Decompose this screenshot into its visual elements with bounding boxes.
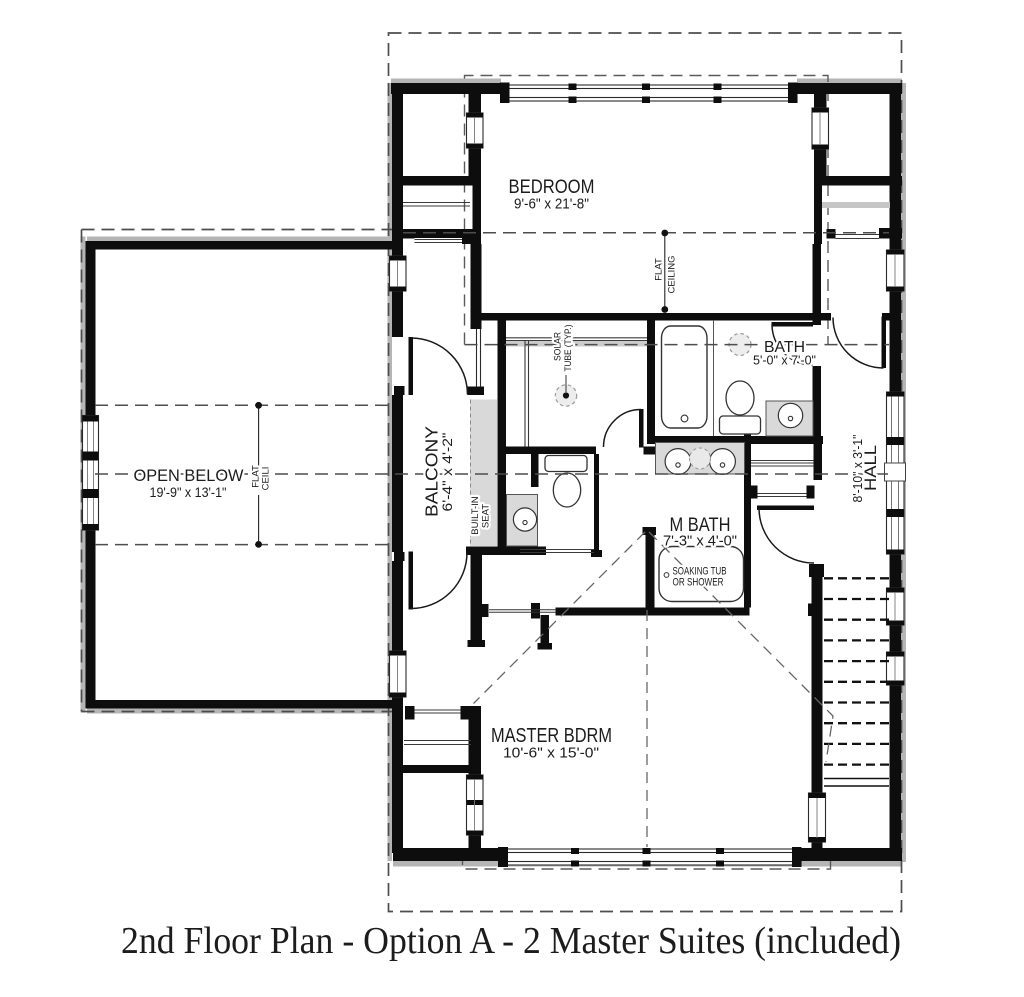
svg-text:CEILING: CEILING bbox=[667, 255, 678, 293]
svg-text:19'-9" x 13'-1": 19'-9" x 13'-1" bbox=[150, 484, 227, 500]
svg-text:2nd Floor Plan - Option A - 2: 2nd Floor Plan - Option A - 2 Master Sui… bbox=[121, 920, 901, 962]
svg-text:CEILI: CEILI bbox=[261, 467, 272, 491]
svg-text:BEDROOM: BEDROOM bbox=[509, 177, 595, 198]
svg-text:SEAT: SEAT bbox=[481, 504, 492, 528]
svg-text:10'-6" x 15'-0": 10'-6" x 15'-0" bbox=[503, 745, 599, 762]
svg-text:OR SHOWER: OR SHOWER bbox=[673, 577, 724, 589]
svg-text:FLAT: FLAT bbox=[654, 258, 665, 281]
svg-text:8'-10" x 3'-1": 8'-10" x 3'-1" bbox=[851, 435, 865, 503]
svg-text:6'-4" x 4'-2": 6'-4" x 4'-2" bbox=[440, 432, 455, 511]
svg-text:BUILT-IN: BUILT-IN bbox=[470, 496, 481, 534]
svg-text:9'-6" x 21'-8": 9'-6" x 21'-8" bbox=[514, 197, 589, 213]
svg-text:5'-0" x 7'-0": 5'-0" x 7'-0" bbox=[753, 354, 816, 368]
svg-text:TUBE (TYP.): TUBE (TYP.) bbox=[563, 325, 574, 372]
svg-text:SOLAR: SOLAR bbox=[553, 332, 564, 361]
svg-text:OPEN BELOW: OPEN BELOW bbox=[134, 467, 244, 485]
svg-text:7'-3" x 4'-0": 7'-3" x 4'-0" bbox=[663, 534, 737, 550]
svg-text:BALCONY: BALCONY bbox=[422, 426, 442, 517]
